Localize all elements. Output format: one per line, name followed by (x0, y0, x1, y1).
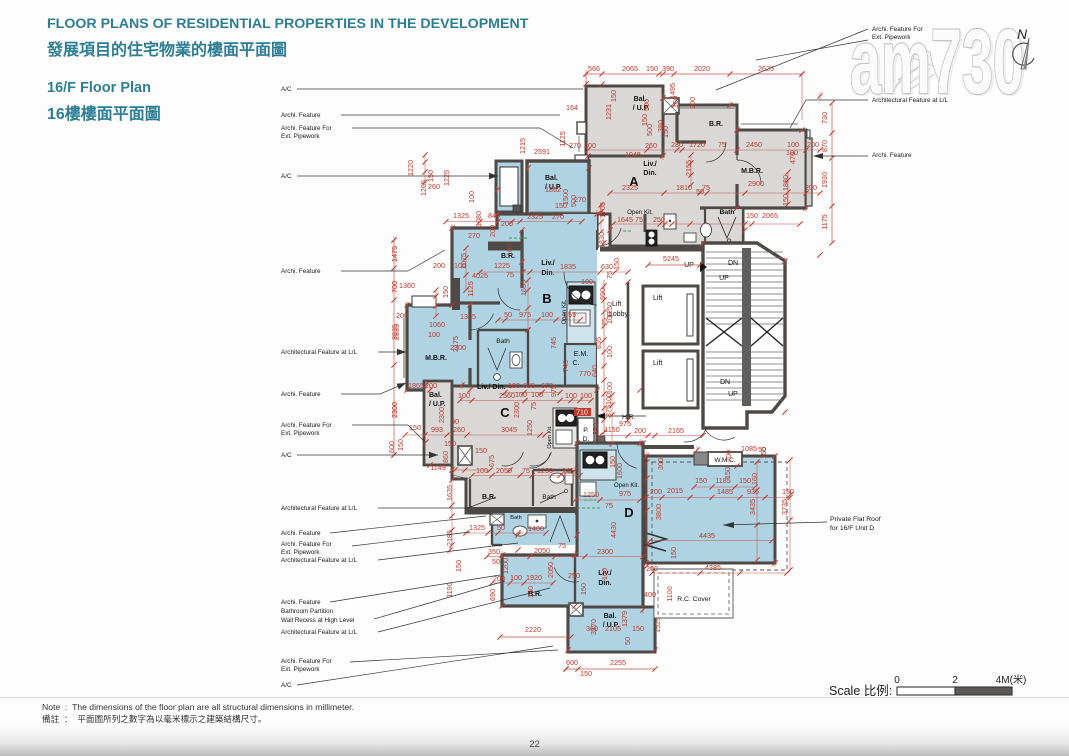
svg-text:Scale 比例:: Scale 比例: (829, 684, 892, 698)
svg-text:150: 150 (454, 560, 463, 572)
svg-text:150: 150 (396, 439, 405, 451)
svg-text:500: 500 (642, 99, 651, 111)
svg-text:1655: 1655 (519, 280, 528, 296)
svg-text:2165: 2165 (668, 426, 684, 435)
svg-text:2050: 2050 (546, 562, 555, 578)
svg-text:Bath: Bath (496, 338, 510, 345)
svg-text:1475: 1475 (390, 246, 399, 262)
svg-text:1250: 1250 (537, 466, 553, 475)
svg-text:Bal.: Bal. (429, 392, 442, 399)
svg-text:Din.: Din. (643, 170, 656, 177)
svg-text:N: N (1017, 26, 1028, 42)
svg-text:100: 100 (508, 381, 520, 390)
svg-text:830: 830 (597, 232, 606, 244)
svg-text:Archi. Feature For: Archi. Feature For (281, 658, 332, 665)
svg-text:2300: 2300 (437, 407, 446, 423)
svg-text:2625: 2625 (758, 64, 774, 73)
svg-text:850: 850 (591, 423, 600, 435)
svg-text:150: 150 (669, 547, 678, 559)
svg-text:B.R.: B.R. (709, 121, 723, 128)
svg-text:250: 250 (568, 571, 580, 580)
svg-text:50: 50 (696, 187, 704, 196)
svg-text:1200: 1200 (501, 558, 510, 574)
svg-text:M.B.R.: M.B.R. (425, 355, 447, 362)
svg-text:600: 600 (387, 441, 396, 453)
svg-text:740: 740 (561, 360, 570, 372)
svg-text:100: 100 (605, 346, 614, 358)
svg-text:2900: 2900 (748, 179, 764, 188)
svg-text:Ext. Pipework: Ext. Pipework (281, 549, 320, 556)
svg-text:2450: 2450 (746, 140, 762, 149)
svg-text:100: 100 (505, 244, 514, 256)
svg-text:Archi. Feature: Archi. Feature (872, 152, 912, 159)
svg-text:1325: 1325 (469, 523, 485, 532)
svg-text:1945: 1945 (625, 150, 641, 159)
svg-text:1835: 1835 (560, 262, 576, 271)
svg-text:2065: 2065 (762, 211, 778, 220)
svg-text:1225: 1225 (494, 261, 510, 270)
svg-text:1149: 1149 (430, 463, 445, 472)
svg-text:1325: 1325 (453, 211, 469, 220)
svg-text:260: 260 (428, 182, 440, 191)
svg-text:700: 700 (724, 450, 733, 462)
svg-text:1635: 1635 (445, 485, 454, 501)
svg-text:1645 75: 1645 75 (617, 215, 643, 224)
svg-text:2020: 2020 (694, 64, 710, 73)
svg-text:C.: C. (573, 360, 580, 367)
svg-text:1225: 1225 (442, 170, 451, 186)
svg-text:75: 75 (506, 270, 514, 279)
svg-text:270: 270 (552, 212, 564, 221)
svg-text:1880: 1880 (781, 175, 790, 191)
svg-text:Architectural Feature at L/L: Architectural Feature at L/L (281, 505, 357, 512)
svg-text:1215: 1215 (518, 138, 527, 154)
svg-text:150: 150 (475, 446, 487, 455)
svg-text:Archi. Feature For: Archi. Feature For (281, 125, 332, 132)
svg-text:0: 0 (894, 675, 900, 686)
svg-text:2325: 2325 (622, 183, 638, 192)
svg-text:150: 150 (609, 90, 618, 102)
svg-text:Wall Recess at High Level: Wall Recess at High Level (281, 617, 354, 624)
svg-text:150: 150 (781, 194, 790, 206)
svg-text:1250: 1250 (525, 420, 534, 436)
svg-text:Lift: Lift (653, 295, 662, 302)
svg-text:Archi. Feature: Archi. Feature (281, 391, 321, 398)
svg-text:Architectural Feature at L/L: Architectural Feature at L/L (281, 629, 357, 636)
svg-text:4435: 4435 (699, 531, 715, 540)
svg-text:730: 730 (820, 112, 829, 124)
svg-text:50: 50 (623, 637, 632, 645)
svg-text:Archi. Feature: Archi. Feature (281, 268, 321, 275)
svg-text:2105: 2105 (605, 624, 621, 633)
svg-text:160: 160 (750, 473, 759, 485)
svg-text:Ext. Pipework: Ext. Pipework (281, 430, 320, 437)
svg-text:100: 100 (541, 310, 553, 319)
svg-text:690: 690 (488, 589, 497, 601)
svg-text:1810: 1810 (676, 183, 692, 192)
svg-text:2300: 2300 (390, 402, 399, 418)
svg-text:100: 100 (454, 261, 466, 270)
svg-text:2255: 2255 (610, 658, 626, 667)
svg-text:for 16/F Unit D: for 16/F Unit D (830, 525, 874, 532)
svg-text:745: 745 (549, 337, 558, 349)
svg-text:150: 150 (695, 476, 707, 485)
svg-text:Bathroom Partition: Bathroom Partition (281, 608, 334, 615)
svg-text:100: 100 (605, 382, 614, 394)
svg-text:50: 50 (492, 557, 500, 566)
svg-text:Private Flat Roof: Private Flat Roof (830, 516, 881, 523)
svg-text:710: 710 (576, 410, 588, 417)
svg-text:200: 200 (650, 487, 662, 496)
svg-text:100: 100 (786, 148, 798, 157)
svg-text:3435: 3435 (748, 499, 757, 515)
svg-text:1865: 1865 (408, 381, 424, 390)
svg-text:600: 600 (566, 658, 578, 667)
svg-text:Bath: Bath (542, 494, 556, 501)
svg-text:Ext. Pipework: Ext. Pipework (281, 133, 320, 140)
svg-text:Liv./ Din.: Liv./ Din. (477, 384, 506, 391)
svg-text:1100: 1100 (665, 586, 674, 601)
svg-text:870: 870 (820, 140, 829, 152)
svg-text:200: 200 (805, 183, 817, 192)
svg-text:975: 975 (619, 419, 631, 428)
svg-text:1930: 1930 (820, 172, 829, 188)
svg-text:D: D (624, 505, 633, 520)
svg-text:Archi. Feature For: Archi. Feature For (281, 541, 332, 548)
svg-text:2050: 2050 (534, 546, 550, 555)
svg-text:164: 164 (566, 103, 578, 112)
svg-text:1360: 1360 (399, 281, 415, 290)
svg-text:150: 150 (661, 126, 670, 138)
svg-text:R.C. Cover: R.C. Cover (677, 596, 711, 603)
svg-text:1379: 1379 (620, 611, 629, 627)
svg-text:200: 200 (488, 225, 497, 237)
svg-text:1862: 1862 (545, 185, 561, 194)
svg-text:150: 150 (759, 447, 768, 459)
svg-text:50: 50 (497, 523, 505, 532)
svg-text:260: 260 (645, 141, 657, 150)
svg-text:150: 150 (580, 669, 592, 678)
svg-text:150: 150 (444, 439, 456, 448)
svg-text:Open Kit.: Open Kit. (547, 425, 553, 449)
svg-text:700: 700 (390, 281, 399, 293)
svg-text:100: 100 (476, 466, 488, 475)
svg-text:150: 150 (579, 583, 588, 595)
svg-text:1125: 1125 (558, 131, 567, 146)
svg-text:Bath: Bath (510, 515, 522, 521)
svg-text:3800: 3800 (654, 504, 663, 520)
svg-text:280: 280 (671, 140, 683, 149)
svg-text:A/C: A/C (281, 86, 292, 93)
svg-text:350: 350 (488, 547, 500, 556)
svg-text:1231: 1231 (604, 104, 613, 120)
svg-text:2175: 2175 (451, 336, 460, 352)
svg-text:Ext. Pipework: Ext. Pipework (281, 666, 320, 673)
svg-text:1400: 1400 (528, 524, 544, 533)
svg-text:655: 655 (523, 381, 535, 390)
svg-text:500: 500 (569, 195, 578, 207)
svg-text:75: 75 (522, 466, 530, 475)
svg-text:270: 270 (468, 231, 480, 240)
svg-text:360: 360 (586, 624, 598, 633)
svg-text:2220: 2220 (525, 625, 541, 634)
svg-text:1220: 1220 (406, 160, 415, 176)
svg-text:150: 150 (646, 64, 658, 73)
svg-text:2065: 2065 (622, 64, 638, 73)
svg-text:1085: 1085 (741, 444, 757, 453)
svg-text:1175: 1175 (820, 214, 829, 229)
svg-text:150: 150 (441, 286, 450, 298)
svg-text:1485: 1485 (717, 487, 733, 496)
svg-text:200: 200 (634, 426, 646, 435)
svg-text:75: 75 (529, 402, 538, 410)
svg-text:675: 675 (487, 455, 496, 467)
svg-text:145: 145 (562, 466, 574, 475)
svg-text:Liv./: Liv./ (643, 161, 657, 168)
svg-text:100: 100 (428, 330, 440, 339)
svg-text:4430: 4430 (609, 522, 618, 538)
svg-text:640: 640 (590, 365, 599, 377)
svg-text:75: 75 (558, 541, 566, 550)
svg-text:975: 975 (519, 310, 531, 319)
svg-text:200: 200 (396, 311, 408, 320)
svg-text:3045: 3045 (501, 425, 517, 434)
svg-text:200: 200 (433, 261, 445, 270)
svg-text:1250: 1250 (583, 490, 599, 499)
svg-text:Bath: Bath (719, 209, 734, 216)
svg-text:4M(米): 4M(米) (996, 673, 1027, 686)
svg-text:390: 390 (662, 64, 674, 73)
svg-text:E.M.: E.M. (574, 351, 588, 358)
svg-text:150: 150 (723, 467, 732, 479)
svg-text:300: 300 (656, 458, 665, 470)
svg-text:Din.: Din. (541, 270, 554, 277)
svg-text:1529: 1529 (653, 617, 662, 633)
svg-text:566: 566 (588, 64, 600, 73)
svg-text:1920: 1920 (526, 573, 542, 582)
svg-text:DN: DN (720, 379, 730, 386)
svg-text:2591: 2591 (534, 147, 550, 156)
svg-text:150: 150 (608, 456, 617, 468)
svg-text:860: 860 (441, 451, 450, 463)
svg-text:200: 200 (688, 97, 697, 109)
svg-text:DN: DN (728, 260, 738, 267)
svg-text:100: 100 (600, 568, 609, 580)
svg-text:150: 150 (612, 258, 621, 270)
svg-text:am730: am730 (850, 11, 1024, 113)
svg-text:260: 260 (453, 425, 465, 434)
svg-text:655: 655 (564, 310, 576, 319)
svg-text:A/C: A/C (281, 682, 292, 689)
svg-text:Din.: Din. (598, 580, 611, 587)
svg-text:975: 975 (549, 385, 558, 397)
svg-text:150: 150 (555, 201, 567, 210)
svg-text:250: 250 (653, 215, 665, 224)
svg-text:Bal.: Bal. (545, 175, 558, 182)
svg-text:500: 500 (645, 124, 654, 136)
svg-text:75: 75 (605, 501, 613, 510)
svg-text:100: 100 (565, 391, 577, 400)
svg-text:975: 975 (619, 489, 631, 498)
svg-text:Archi. Feature: Archi. Feature (281, 599, 321, 606)
svg-text:2015: 2015 (667, 486, 683, 495)
svg-text:400: 400 (644, 590, 656, 599)
svg-text:270: 270 (569, 141, 581, 150)
svg-text:200: 200 (501, 219, 513, 228)
svg-text:A/C: A/C (281, 452, 292, 459)
svg-text:2: 2 (952, 675, 958, 686)
svg-text:M.B.R.: M.B.R. (741, 168, 763, 175)
svg-text:100: 100 (605, 312, 614, 324)
svg-text:Architectural Feature at L/L: Architectural Feature at L/L (281, 557, 357, 564)
svg-text:50: 50 (504, 310, 512, 319)
svg-text:Bal.: Bal. (604, 613, 617, 620)
svg-text:993: 993 (431, 425, 443, 434)
svg-text:1305: 1305 (460, 312, 476, 321)
svg-text:75: 75 (718, 140, 726, 149)
svg-text:2835: 2835 (392, 324, 401, 340)
svg-text:1080: 1080 (474, 211, 483, 227)
svg-text:Archi. Feature For: Archi. Feature For (281, 422, 332, 429)
svg-text:2300: 2300 (597, 547, 613, 556)
svg-text:3735: 3735 (780, 499, 789, 515)
svg-text:5245: 5245 (663, 254, 679, 263)
svg-text:150: 150 (746, 211, 758, 220)
svg-text:4385: 4385 (705, 563, 721, 572)
svg-text:1720: 1720 (689, 140, 705, 149)
svg-text:Lift: Lift (653, 360, 662, 367)
svg-text:UP: UP (684, 262, 694, 269)
svg-text:Archi. Feature: Archi. Feature (281, 530, 321, 537)
svg-text:1190: 1190 (445, 582, 454, 597)
svg-text:Archi. Feature: Archi. Feature (281, 112, 321, 119)
svg-text:P.: P. (583, 427, 589, 434)
svg-text:100: 100 (467, 191, 476, 203)
svg-text:UP: UP (728, 391, 738, 398)
svg-text:/ U.P.: / U.P. (429, 401, 446, 408)
svg-text:A/C: A/C (281, 173, 292, 180)
svg-text:Liv./: Liv./ (541, 260, 555, 267)
svg-text:100: 100 (581, 277, 593, 286)
svg-text:C: C (500, 405, 510, 420)
svg-text:UP: UP (719, 275, 729, 282)
svg-text:150: 150 (632, 624, 644, 633)
svg-text:2300: 2300 (512, 402, 521, 418)
svg-text:B: B (542, 291, 551, 306)
svg-text:990: 990 (598, 288, 607, 300)
svg-text:2325: 2325 (527, 212, 543, 221)
svg-text:Architectural Feature at L/L: Architectural Feature at L/L (281, 349, 357, 356)
svg-text:1060: 1060 (429, 320, 445, 329)
svg-text:835: 835 (594, 337, 603, 349)
svg-text:100: 100 (531, 390, 543, 399)
